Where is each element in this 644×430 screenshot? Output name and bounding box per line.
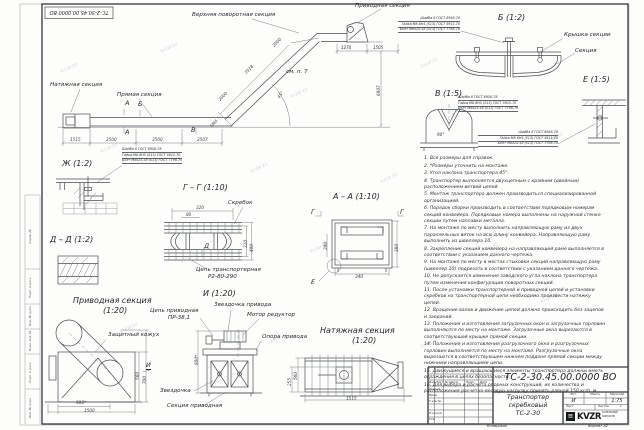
section-mark-g: Г [400,209,404,216]
fastener-callout: Шайба 8 ГОСТ 6958-78 Гайка М8-6Н5 (S13) … [458,96,518,113]
fastener-callout: Шайба 8 ГОСТ 6958-78 Гайка М8-6Н5 (S13) … [122,148,182,165]
note: 5. Монтаж транспортера должен производит… [424,192,608,205]
dim: 700 [143,376,147,384]
section-label: Секция [575,49,597,55]
drive-section-caption: Секция приводная [167,404,222,410]
conveyor-chain-model: Р2-80-290 [208,275,237,281]
view-title-e: Е (1:5) [583,76,610,84]
margin-cell-label: Справ. № [28,229,32,244]
sheet-header: Лист [566,405,573,408]
section-mark-a: А [125,100,129,107]
row-tcontrol: Т.контр. [429,400,442,403]
margin-cell-label: Подп. и дата [28,278,32,298]
callout-line: Болт М8х25.58 (S13) ГОСТ 7798-70 [398,28,460,33]
note: 10. Не допускается изменение заводского … [424,274,608,287]
margin-cell-label: Инв. № подл. [28,397,32,418]
col-doc: № докум. [445,381,459,384]
fastener-callout: Шайба 8 ГОСТ 6958-78 Гайка М8-6Н5 (S13) … [478,131,558,148]
section-mark-v: В [191,127,195,134]
view-title-gg: Г – Г (1:10) [183,184,228,192]
mass-header: Масса [584,393,606,396]
drive-sprocket-label: Звездочка привода [214,303,271,309]
sheets-header: Листов [598,405,609,408]
dim: 900* [76,401,86,405]
row-checker: Пров. [429,394,438,397]
straight-section-label: Прямая секция [117,93,162,99]
view-title-drive-scale: (1:20) [103,307,127,315]
note: 6. Порядок сборки производить в соответс… [424,206,608,225]
col-sheet: Лист [436,381,443,384]
margin-cell-label: Подп. и дата [28,363,32,383]
technical-notes: 1. Все размеры для справок. 2. *Размеры … [424,156,608,396]
section-cover-label: Крышка секции [564,33,611,39]
note: 12. Вращение валов и движение цепей долж… [424,308,608,321]
callout-line: Болт М8х25.58 (S13) ГОСТ 7798-70 [458,107,518,112]
dim: 80 [186,213,191,217]
dim: 560 [136,372,140,380]
dim: 2507 [197,138,208,142]
note: 13. Положения и изготовления загрузочных… [424,322,608,341]
upper-turn-section-label: Верхняя поворотная секция [192,13,275,19]
dim: 3500 [106,138,117,142]
row-developer: Разраб. [429,388,441,391]
note: 2. *Размеры уточнить на монтаже. [424,164,608,170]
logo-subtext: ЗАВОД РФ [602,416,615,418]
format-label: Формат А2 [588,425,608,429]
col-change: Изм. [429,381,436,384]
dim: 380 [395,244,399,252]
corner-stamp: ТС-2-30.45.00.0000 ВО [47,9,111,14]
view-title-dd: Д – Д (1:2) [50,236,93,244]
section-mark-g: Г [311,209,315,216]
col-date: Дата [480,381,487,384]
section-mark-d: Д [204,243,209,250]
section-mark-b: Б [138,101,142,108]
dim: 90° [437,133,444,137]
margin-cell-label: Инв. № дубл. [28,305,32,326]
motor-reducer-label: Мотор редуктор [247,313,295,319]
scale-header: Масштаб [606,393,628,396]
conveyor-chain-label: Цепь транспортерная [196,268,261,274]
drive-chain-label: Цепь приводная [150,309,198,315]
note: 1. Все размеры для справок. [424,156,608,162]
copied-label: Копировал [487,425,507,429]
note: 7. На монтаже по месту выполнить направл… [424,226,608,245]
doc-name-line: Транспортер [494,395,562,401]
kvzr-logo-text: KVZR [577,412,601,422]
sprocket-label: Звездочка [160,389,191,395]
dim: 560 [294,372,298,380]
protective-cover-label: Защитный кожух [108,333,159,339]
fastener-callout: Шайба 8 ГОСТ 6958-78 Гайка М8-6Н5 (S13) … [398,17,460,34]
tension-section-label: Натяжная секция [50,83,102,89]
doc-name-line: скребковый [494,403,562,409]
title-block-designation: ТС-2-30.45.00.0000 ВО [495,373,626,383]
lit-header: Лит. [563,393,584,396]
view-mark-i: И [146,362,151,370]
dim: 255 [288,378,292,386]
dim: 1515 [70,138,81,142]
dim: 1270 [341,46,351,50]
note: 9. На монтаже по месту в местах стыковки… [424,260,608,273]
dim: 3500 [152,138,163,142]
dim: 340 [355,275,363,279]
drive-support-label: Опора привода [262,335,307,341]
sheets-value: 1 [620,405,622,408]
callout-line: Болт М8х25.58 (S13) ГОСТ 7798-70 [478,142,558,147]
row-approver: Утв. [429,418,435,421]
dim: 320 [196,206,204,210]
see-note-label: см. п. 7 [286,70,308,76]
view-title-zh: Ж (1:2) [62,160,92,168]
scale-value: 1:75 [606,399,628,404]
drive-section-label: Приводная секция [355,4,410,10]
drawing-sheet: kvzar.kz kvzar.kz kvzar.kz kvzar.kz kvza… [0,0,644,430]
note: 14. Положения и изготовления разгрузочно… [424,342,608,367]
row-ncontrol: Н.контр. [429,412,442,415]
col-sign: Подп. [466,381,474,384]
dim: 1515 [346,397,357,401]
view-title-drive: Приводная секция [73,297,152,305]
drive-chain-model: ПР-38,1 [168,316,190,322]
note: 4. Транспортер выполняется двухцепным с … [424,179,608,192]
dim: 320 [244,240,248,248]
dim: 6907 [377,85,381,96]
scraper-label: Скребок [228,201,253,207]
detail-mark-e: Е [311,279,315,286]
view-title-tension-scale: (1:20) [352,337,376,345]
margin-cell-label: Взам. инв. № [28,331,32,351]
note: 8. Закрепление секций конвейера на напра… [424,247,608,260]
section-mark-a: А [125,129,129,136]
dim: 1505 [373,46,383,50]
note: 3. Угол наклона транспортера 45°. [424,171,608,177]
view-title-v: В (1:5) [435,90,462,98]
note: 11. После установки транспортерной и при… [424,288,608,307]
dim: 200 [324,242,328,250]
view-title-tension: Натяжная секция [320,327,395,335]
view-title-b: Б (1:2) [498,14,525,22]
dim: 800* [195,355,199,365]
doc-name-line: ТС-2-30 [494,411,562,417]
view-title-i: И (1:20) [203,290,236,298]
callout-line: Болт М8х25.58 (S13) ГОСТ 7798-70 [122,159,182,164]
view-title-aa: А – А (1:10) [333,193,380,201]
dim: 1500 [84,409,95,413]
kvzr-logo-icon: ≡ [566,412,575,421]
dim: 400 [250,244,254,252]
